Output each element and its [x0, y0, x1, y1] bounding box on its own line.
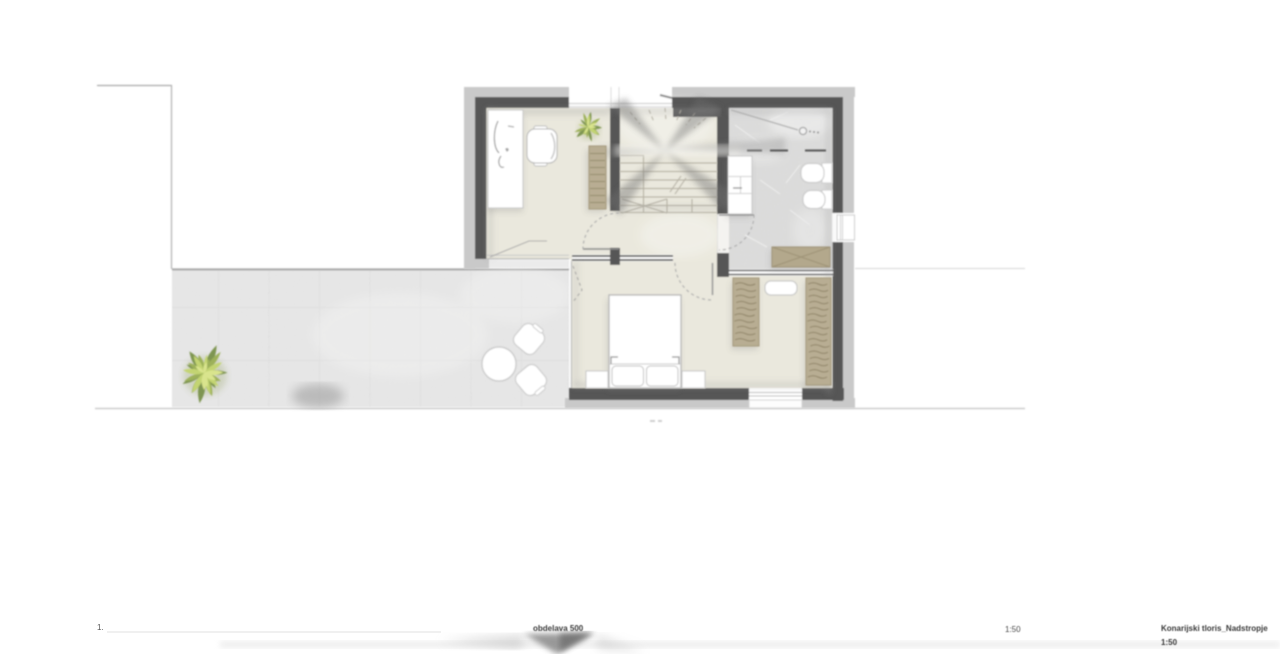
- svg-text:1:50: 1:50: [1005, 625, 1021, 634]
- svg-text:obdelava 500: obdelava 500: [533, 624, 584, 633]
- svg-text:1:50: 1:50: [1161, 638, 1178, 647]
- svg-text:Konarijski tloris_Nadstropje: Konarijski tloris_Nadstropje: [1161, 624, 1268, 633]
- svg-text:1.: 1.: [97, 623, 104, 632]
